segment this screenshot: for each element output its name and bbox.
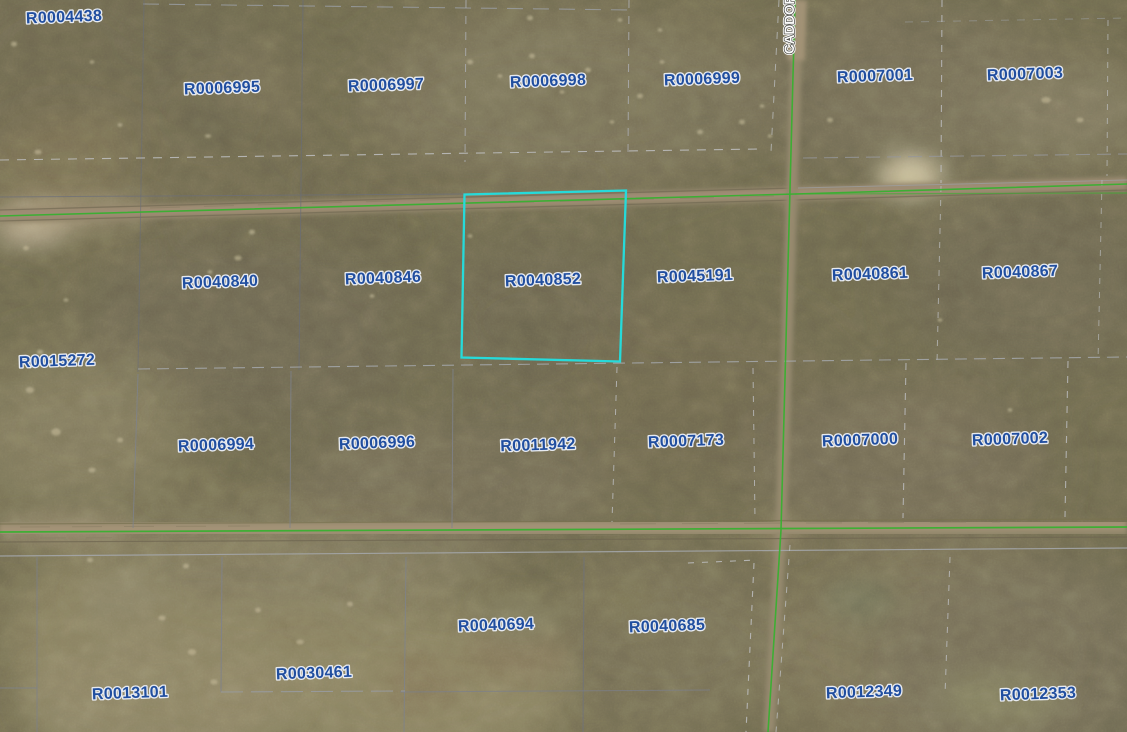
svg-text:R0040867: R0040867 [982, 263, 1059, 283]
svg-text:R0007173: R0007173 [648, 432, 725, 452]
svg-text:R0013101: R0013101 [92, 684, 169, 704]
svg-text:R0045191: R0045191 [657, 267, 734, 287]
svg-text:R0012353: R0012353 [1000, 685, 1077, 705]
svg-text:R0015272: R0015272 [19, 352, 96, 372]
svg-text:CADDOR: CADDOR [782, 0, 797, 54]
svg-text:R0040694: R0040694 [458, 616, 535, 636]
svg-text:R0011942: R0011942 [500, 436, 576, 456]
svg-text:R0006994: R0006994 [178, 436, 255, 456]
svg-text:R0040840: R0040840 [182, 273, 259, 293]
svg-text:R0006995: R0006995 [184, 79, 261, 99]
svg-text:R0040861: R0040861 [832, 265, 909, 285]
svg-text:R0007001: R0007001 [837, 67, 914, 87]
svg-text:R0007002: R0007002 [972, 430, 1049, 450]
svg-text:R0030461: R0030461 [276, 664, 353, 684]
svg-text:R0004438: R0004438 [26, 8, 103, 28]
svg-text:R0007000: R0007000 [822, 431, 899, 451]
svg-text:R0006999: R0006999 [664, 70, 741, 90]
svg-text:R0040685: R0040685 [629, 617, 706, 637]
svg-text:R0040852: R0040852 [505, 271, 582, 291]
svg-text:R0040846: R0040846 [345, 269, 422, 289]
svg-text:R0006998: R0006998 [510, 72, 587, 92]
svg-text:R0006996: R0006996 [339, 434, 416, 454]
svg-text:R0012349: R0012349 [826, 683, 903, 703]
svg-text:R0006997: R0006997 [348, 76, 425, 96]
svg-text:R0007003: R0007003 [987, 65, 1064, 85]
